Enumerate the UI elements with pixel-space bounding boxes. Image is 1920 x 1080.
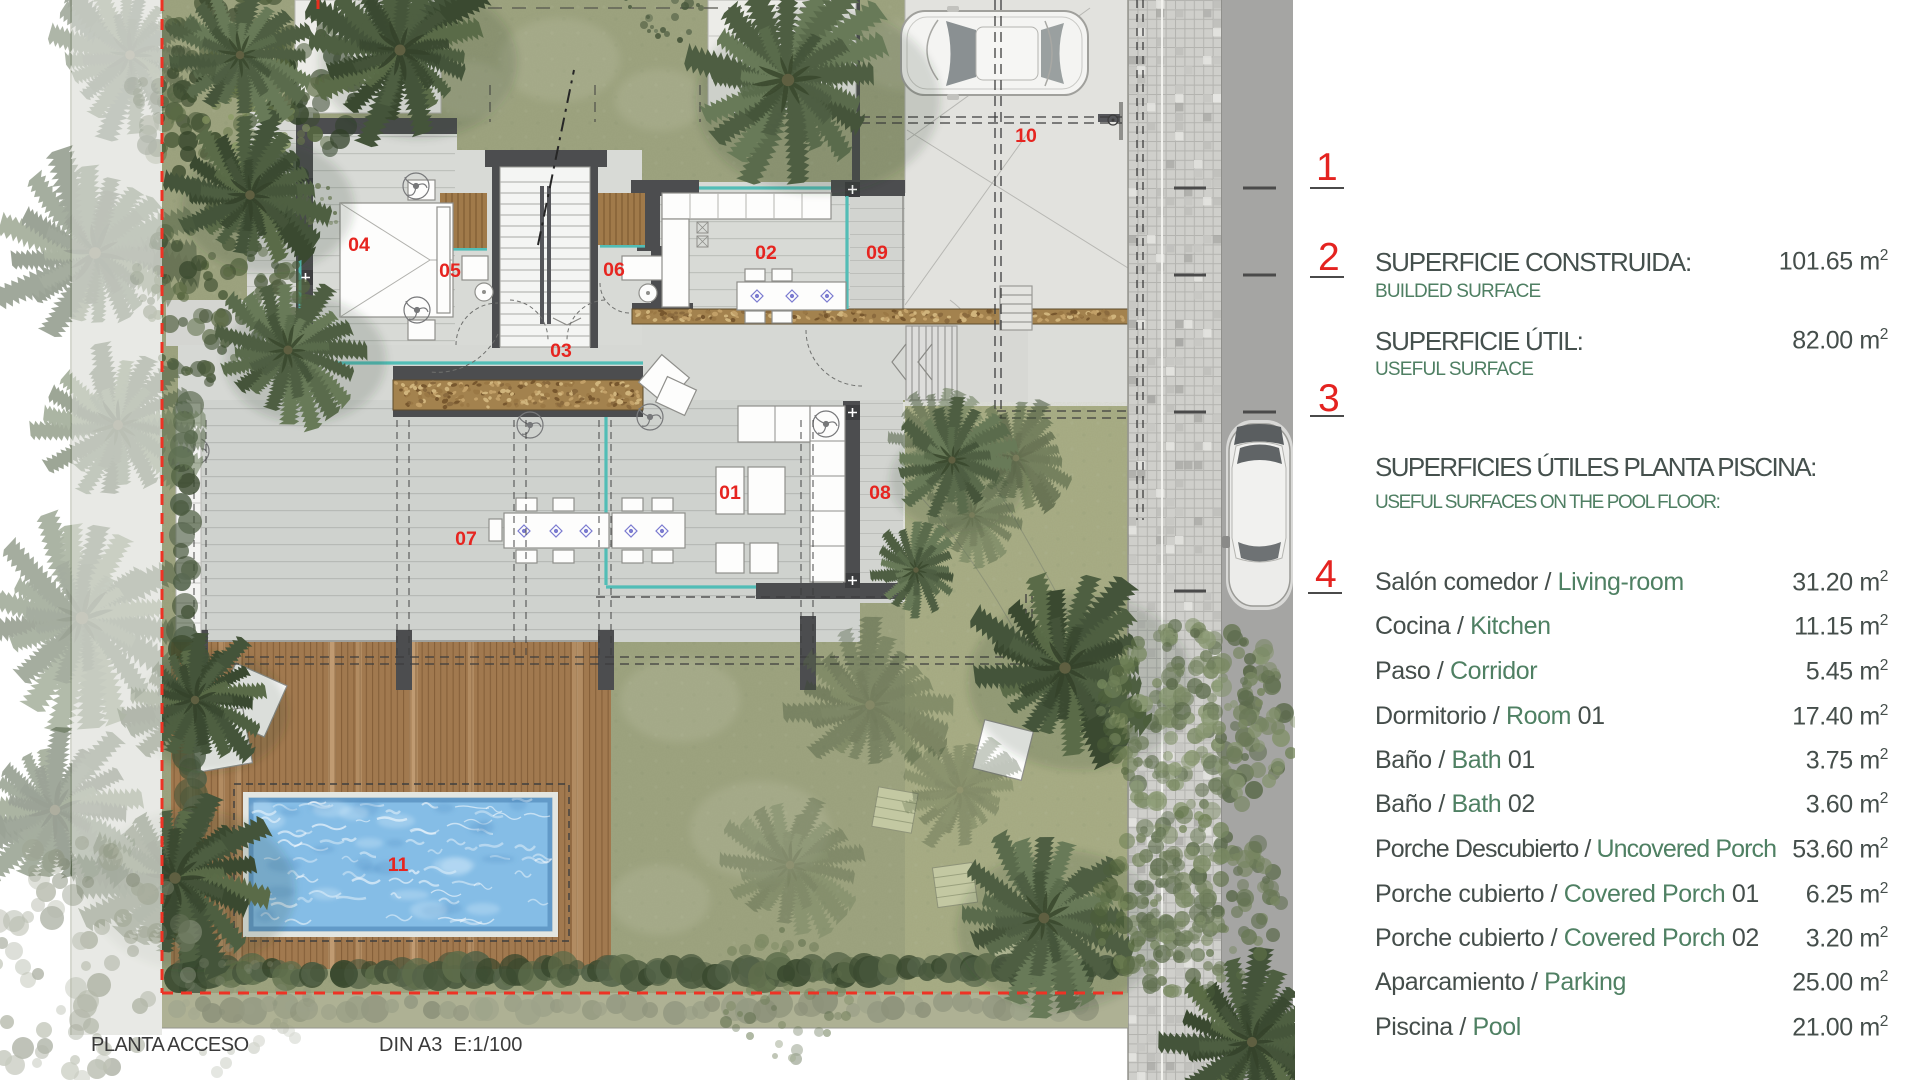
svg-text:05: 05 <box>439 260 461 282</box>
svg-text:01: 01 <box>719 482 741 504</box>
svg-text:03: 03 <box>550 340 572 362</box>
svg-text:07: 07 <box>455 528 477 550</box>
svg-text:08: 08 <box>869 482 891 504</box>
svg-text:06: 06 <box>603 259 625 281</box>
svg-text:09: 09 <box>866 242 888 264</box>
svg-text:04: 04 <box>348 234 370 256</box>
svg-text:11: 11 <box>388 854 409 876</box>
svg-text:02: 02 <box>755 242 777 264</box>
svg-text:10: 10 <box>1015 125 1037 147</box>
